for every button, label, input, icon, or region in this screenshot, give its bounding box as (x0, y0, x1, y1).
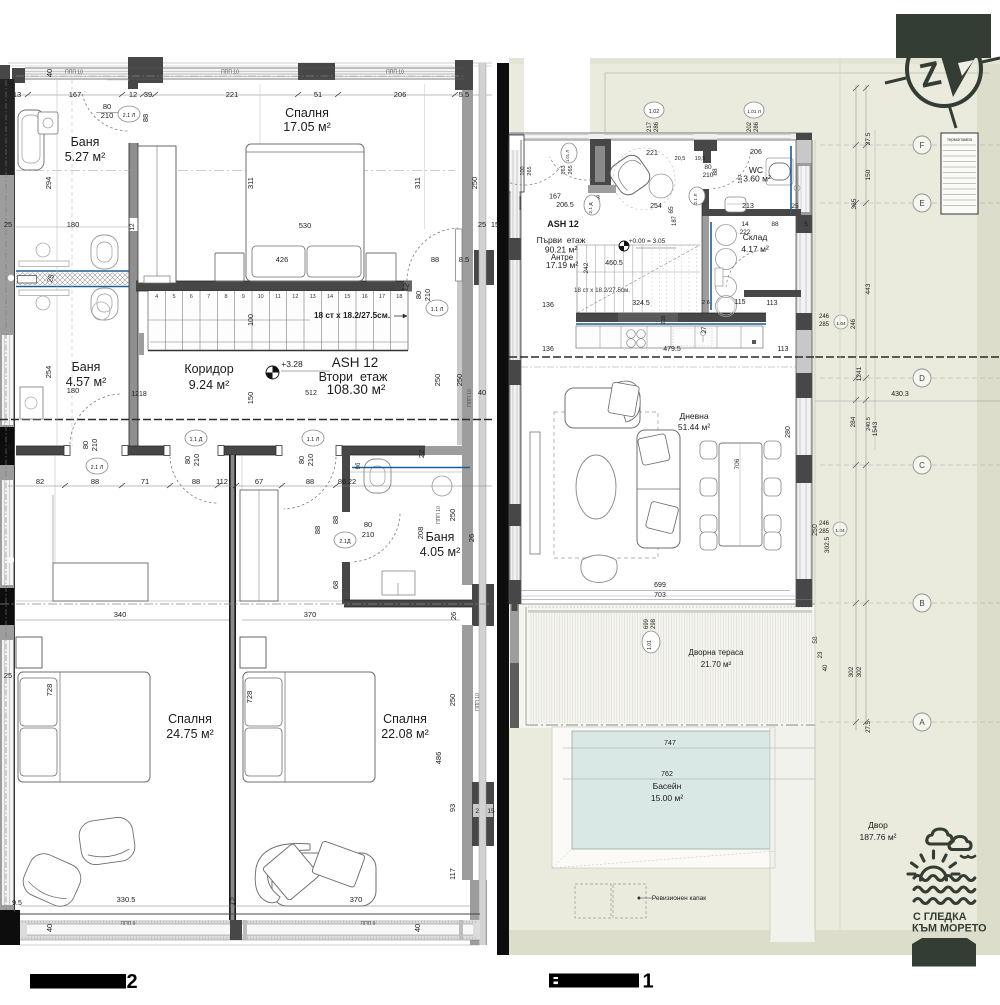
svg-text:40: 40 (45, 924, 54, 932)
svg-text:+3.28: +3.28 (281, 359, 303, 369)
svg-text:115: 115 (734, 299, 745, 306)
svg-text:88: 88 (306, 477, 314, 486)
svg-text:202: 202 (747, 121, 753, 132)
svg-text:17.19 м²: 17.19 м² (546, 260, 578, 270)
svg-text:F: F (920, 141, 925, 150)
svg-text:25: 25 (4, 671, 12, 680)
svg-text:82: 82 (36, 477, 44, 486)
svg-text:324.5: 324.5 (632, 300, 650, 307)
svg-text:22: 22 (417, 450, 426, 458)
svg-text:Двор: Двор (868, 820, 888, 830)
svg-text:22.08 м²: 22.08 м² (381, 727, 429, 741)
svg-text:26: 26 (449, 612, 458, 620)
svg-text:40: 40 (45, 69, 54, 77)
svg-text:12: 12 (292, 294, 298, 300)
svg-text:443: 443 (865, 283, 872, 294)
svg-text:93: 93 (448, 804, 457, 812)
svg-text:117: 117 (448, 868, 457, 880)
svg-text:302: 302 (848, 666, 855, 677)
svg-text:426: 426 (276, 255, 289, 264)
svg-text:80: 80 (103, 102, 111, 111)
svg-text:15: 15 (491, 220, 499, 229)
svg-text:167: 167 (69, 90, 82, 99)
svg-text:108.30 м²: 108.30 м² (327, 382, 386, 397)
svg-text:11: 11 (275, 294, 281, 300)
svg-text:1218: 1218 (131, 391, 147, 398)
svg-text:Дневна: Дневна (679, 411, 708, 421)
svg-text:14: 14 (327, 294, 333, 300)
svg-text:27.5: 27.5 (865, 132, 872, 145)
svg-text:246: 246 (819, 521, 830, 527)
svg-text:88: 88 (431, 255, 439, 264)
svg-text:222: 222 (740, 229, 751, 236)
svg-text:4: 4 (155, 294, 158, 300)
svg-text:699: 699 (644, 618, 650, 629)
svg-text:1.1 Д: 1.1 Д (190, 437, 203, 443)
svg-text:280: 280 (785, 426, 792, 438)
svg-text:284: 284 (850, 416, 857, 427)
svg-text:E: E (919, 199, 924, 208)
svg-text:5: 5 (172, 294, 175, 300)
svg-text:370: 370 (350, 895, 363, 904)
svg-text:2 6: 2 6 (702, 300, 710, 306)
svg-text:699: 699 (654, 582, 666, 589)
svg-text:217: 217 (647, 121, 653, 132)
svg-text:113: 113 (766, 300, 777, 307)
svg-text:B: B (919, 599, 924, 608)
svg-text:167: 167 (549, 194, 561, 201)
svg-text:ППП 10: ППП 10 (436, 506, 442, 524)
svg-text:40: 40 (478, 388, 486, 397)
svg-text:206: 206 (394, 90, 407, 99)
svg-text:80: 80 (364, 520, 372, 529)
svg-text:265: 265 (527, 166, 533, 175)
svg-text:13: 13 (310, 294, 316, 300)
svg-text:250: 250 (433, 374, 442, 387)
svg-text:285: 285 (819, 529, 830, 535)
svg-text:1: 1 (642, 971, 653, 993)
svg-text:302: 302 (856, 666, 863, 677)
svg-text:С ГЛЕДКА: С ГЛЕДКА (913, 911, 967, 923)
svg-text:512: 512 (305, 390, 317, 397)
svg-text:246: 246 (851, 318, 857, 329)
svg-text:25: 25 (4, 220, 12, 229)
svg-text:9б: 9б (356, 462, 362, 469)
svg-text:25: 25 (478, 220, 486, 229)
svg-text:1543: 1543 (872, 421, 879, 436)
svg-text:728: 728 (245, 691, 254, 704)
svg-text:2.1 Л: 2.1 Л (123, 113, 136, 119)
svg-text:4.17 м²: 4.17 м² (741, 244, 769, 254)
svg-text:206: 206 (750, 149, 762, 156)
svg-text:2.1 Д: 2.1 Д (588, 202, 594, 214)
svg-text:+0.00 = 3.05: +0.00 = 3.05 (629, 238, 666, 245)
svg-text:22: 22 (348, 477, 356, 486)
svg-text:71: 71 (141, 477, 149, 486)
svg-text:16: 16 (362, 294, 368, 300)
svg-text:15.00 м²: 15.00 м² (651, 793, 683, 803)
svg-text:747: 747 (664, 740, 676, 747)
svg-text:40: 40 (413, 924, 422, 932)
svg-text:5.27 м²: 5.27 м² (65, 150, 106, 164)
svg-text:250: 250 (812, 524, 819, 536)
svg-text:Баня: Баня (426, 530, 455, 544)
svg-text:210: 210 (362, 530, 375, 539)
svg-text:460.5: 460.5 (605, 260, 623, 267)
svg-text:88: 88 (91, 477, 99, 486)
svg-text:17: 17 (379, 294, 385, 300)
svg-text:18: 18 (396, 294, 402, 300)
svg-text:12: 12 (129, 90, 137, 99)
svg-text:9: 9 (242, 294, 245, 300)
svg-text:Спалня: Спалня (383, 712, 427, 726)
svg-text:210: 210 (192, 454, 201, 467)
svg-text:ППП 10: ППП 10 (65, 70, 83, 76)
svg-text:24.75 м²: 24.75 м² (166, 727, 214, 741)
svg-text:703: 703 (654, 592, 666, 599)
svg-text:67: 67 (255, 477, 263, 486)
svg-text:286: 286 (654, 121, 660, 132)
svg-text:180: 180 (67, 386, 80, 395)
svg-text:250: 250 (448, 694, 457, 707)
svg-text:187: 187 (672, 215, 678, 226)
svg-text:80: 80 (81, 441, 90, 449)
svg-text:294: 294 (44, 177, 53, 190)
svg-text:18 ст x 18.2/27.5см.: 18 ст x 18.2/27.5см. (314, 311, 390, 320)
svg-text:246: 246 (819, 314, 830, 320)
svg-text:486: 486 (434, 752, 443, 765)
svg-text:311: 311 (413, 177, 422, 189)
svg-text:80: 80 (183, 456, 192, 464)
svg-text:250: 250 (470, 177, 479, 190)
svg-text:210: 210 (423, 289, 432, 302)
svg-text:20,5: 20,5 (675, 156, 686, 162)
svg-text:8.5: 8.5 (459, 255, 469, 264)
svg-text:285: 285 (819, 322, 830, 328)
svg-text:370: 370 (304, 610, 317, 619)
svg-text:88: 88 (771, 221, 779, 228)
svg-text:762: 762 (661, 771, 673, 778)
svg-text:5.5: 5.5 (459, 90, 469, 99)
svg-text:213: 213 (742, 203, 754, 210)
svg-text:706: 706 (734, 458, 741, 469)
svg-text:ППП 9: ППП 9 (361, 921, 376, 927)
svg-text:298: 298 (651, 618, 657, 629)
svg-text:180: 180 (67, 220, 80, 229)
svg-text:286: 286 (754, 121, 760, 132)
svg-text:80: 80 (704, 164, 712, 171)
svg-text:Спалня: Спалня (168, 712, 212, 726)
svg-text:1.1 Л: 1.1 Л (431, 307, 444, 313)
svg-text:ASH 12: ASH 12 (547, 219, 579, 229)
svg-text:КЪМ МОРЕТО: КЪМ МОРЕТО (912, 923, 987, 935)
svg-text:15: 15 (487, 808, 495, 815)
svg-text:Басейн: Басейн (653, 781, 682, 791)
svg-text:1.01: 1.01 (647, 640, 653, 650)
svg-text:68: 68 (331, 581, 340, 589)
svg-text:242: 242 (583, 262, 590, 273)
svg-text:Дворна тераса: Дворна тераса (689, 648, 744, 657)
svg-text:88: 88 (712, 168, 719, 176)
svg-text:23: 23 (818, 651, 824, 658)
svg-text:14: 14 (741, 221, 749, 228)
svg-text:210: 210 (90, 439, 99, 452)
svg-text:80: 80 (414, 291, 423, 299)
svg-text:ППП 10: ППП 10 (475, 693, 481, 711)
svg-text:ППП 10: ППП 10 (386, 70, 404, 76)
svg-text:254: 254 (44, 366, 53, 379)
svg-text:65: 65 (668, 206, 675, 214)
svg-text:Баня: Баня (71, 135, 100, 149)
svg-text:88: 88 (141, 114, 150, 122)
svg-text:3.60 м²: 3.60 м² (743, 174, 771, 184)
svg-text:250: 250 (448, 509, 457, 522)
svg-text:254: 254 (650, 203, 662, 210)
svg-text:430.3: 430.3 (891, 391, 909, 398)
svg-text:12: 12 (129, 223, 136, 231)
svg-text:58: 58 (812, 636, 819, 644)
svg-text:13: 13 (13, 90, 21, 99)
svg-text:163: 163 (561, 165, 567, 174)
svg-text:40: 40 (823, 664, 829, 671)
svg-text:150: 150 (246, 392, 255, 405)
svg-text:ППП 10: ППП 10 (467, 389, 473, 407)
svg-text:208: 208 (416, 527, 425, 540)
svg-text:265: 265 (568, 165, 574, 174)
svg-text:2.1 Л: 2.1 Л (693, 193, 699, 204)
svg-text:Баня: Баня (72, 360, 101, 374)
svg-text:187: 187 (738, 174, 744, 183)
svg-text:6: 6 (190, 294, 193, 300)
svg-text:530: 530 (299, 221, 312, 230)
svg-text:112: 112 (216, 477, 228, 486)
svg-text:365: 365 (851, 198, 858, 209)
svg-text:26: 26 (467, 534, 476, 542)
svg-text:термопомпа: термопомпа (947, 137, 973, 142)
svg-text:221: 221 (646, 150, 658, 157)
svg-text:250: 250 (455, 374, 464, 387)
svg-text:1.01 Л: 1.01 Л (565, 150, 570, 162)
svg-text:25: 25 (791, 203, 799, 210)
svg-text:86: 86 (338, 477, 346, 486)
svg-text:7: 7 (207, 294, 210, 300)
svg-text:Спалня: Спалня (285, 106, 329, 120)
svg-text:5: 5 (804, 221, 808, 228)
svg-text:1241: 1241 (856, 366, 863, 381)
svg-text:17.05 м²: 17.05 м² (283, 120, 331, 134)
svg-text:311: 311 (246, 177, 255, 189)
svg-text:Ревизионен капак: Ревизионен капак (652, 895, 706, 902)
svg-text:728: 728 (45, 684, 54, 697)
svg-text:Първи етаж: Първи етаж (537, 235, 586, 245)
svg-text:19,5: 19,5 (695, 156, 706, 162)
svg-text:88: 88 (313, 526, 322, 534)
svg-text:1.01 Л: 1.01 Л (747, 109, 761, 115)
svg-text:330.5: 330.5 (117, 895, 136, 904)
svg-text:340: 340 (114, 610, 127, 619)
svg-text:27: 27 (702, 326, 708, 333)
svg-text:ASH 12: ASH 12 (332, 355, 379, 370)
svg-text:479.5: 479.5 (663, 346, 681, 353)
svg-text:51.44 м²: 51.44 м² (678, 422, 710, 432)
svg-text:4.05 м²: 4.05 м² (420, 545, 461, 559)
svg-text:8: 8 (224, 294, 227, 300)
svg-text:A: A (919, 718, 925, 727)
svg-text:15: 15 (344, 294, 350, 300)
svg-text:2.1 Л: 2.1 Л (91, 465, 104, 471)
svg-text:D: D (919, 374, 925, 383)
svg-text:136: 136 (542, 302, 554, 309)
svg-text:10: 10 (258, 294, 264, 300)
svg-text:ППП 10: ППП 10 (221, 70, 239, 76)
svg-text:100: 100 (520, 166, 526, 175)
svg-text:51: 51 (314, 90, 322, 99)
svg-text:2.1Д: 2.1Д (339, 539, 351, 545)
svg-text:ППП 9: ППП 9 (121, 921, 136, 927)
svg-text:187.76 м²: 187.76 м² (859, 832, 896, 842)
svg-text:39: 39 (144, 90, 152, 99)
svg-text:302.5: 302.5 (824, 536, 831, 553)
svg-text:C: C (919, 461, 925, 470)
svg-text:113: 113 (777, 346, 788, 353)
svg-text:1.1 Л: 1.1 Л (307, 437, 320, 443)
svg-text:210: 210 (306, 454, 315, 467)
svg-text:18 ст х 18.2/27.5см.: 18 ст х 18.2/27.5см. (574, 287, 630, 294)
svg-text:88: 88 (192, 477, 200, 486)
svg-text:2: 2 (126, 971, 137, 993)
svg-text:Коридор: Коридор (184, 362, 233, 376)
svg-text:1.04: 1.04 (836, 321, 846, 327)
svg-text:9.24 м²: 9.24 м² (189, 378, 230, 392)
svg-text:21.70 м²: 21.70 м² (701, 660, 732, 669)
svg-text:221: 221 (226, 90, 239, 99)
svg-text:216: 216 (661, 315, 667, 324)
svg-text:80: 80 (297, 456, 306, 464)
svg-text:27.5: 27.5 (866, 721, 872, 733)
svg-text:150: 150 (865, 169, 872, 180)
svg-text:88: 88 (331, 516, 340, 524)
svg-text:136: 136 (542, 346, 554, 353)
svg-text:25: 25 (4, 443, 12, 452)
svg-text:206.5: 206.5 (556, 202, 574, 209)
svg-text:1.02: 1.02 (649, 109, 660, 115)
